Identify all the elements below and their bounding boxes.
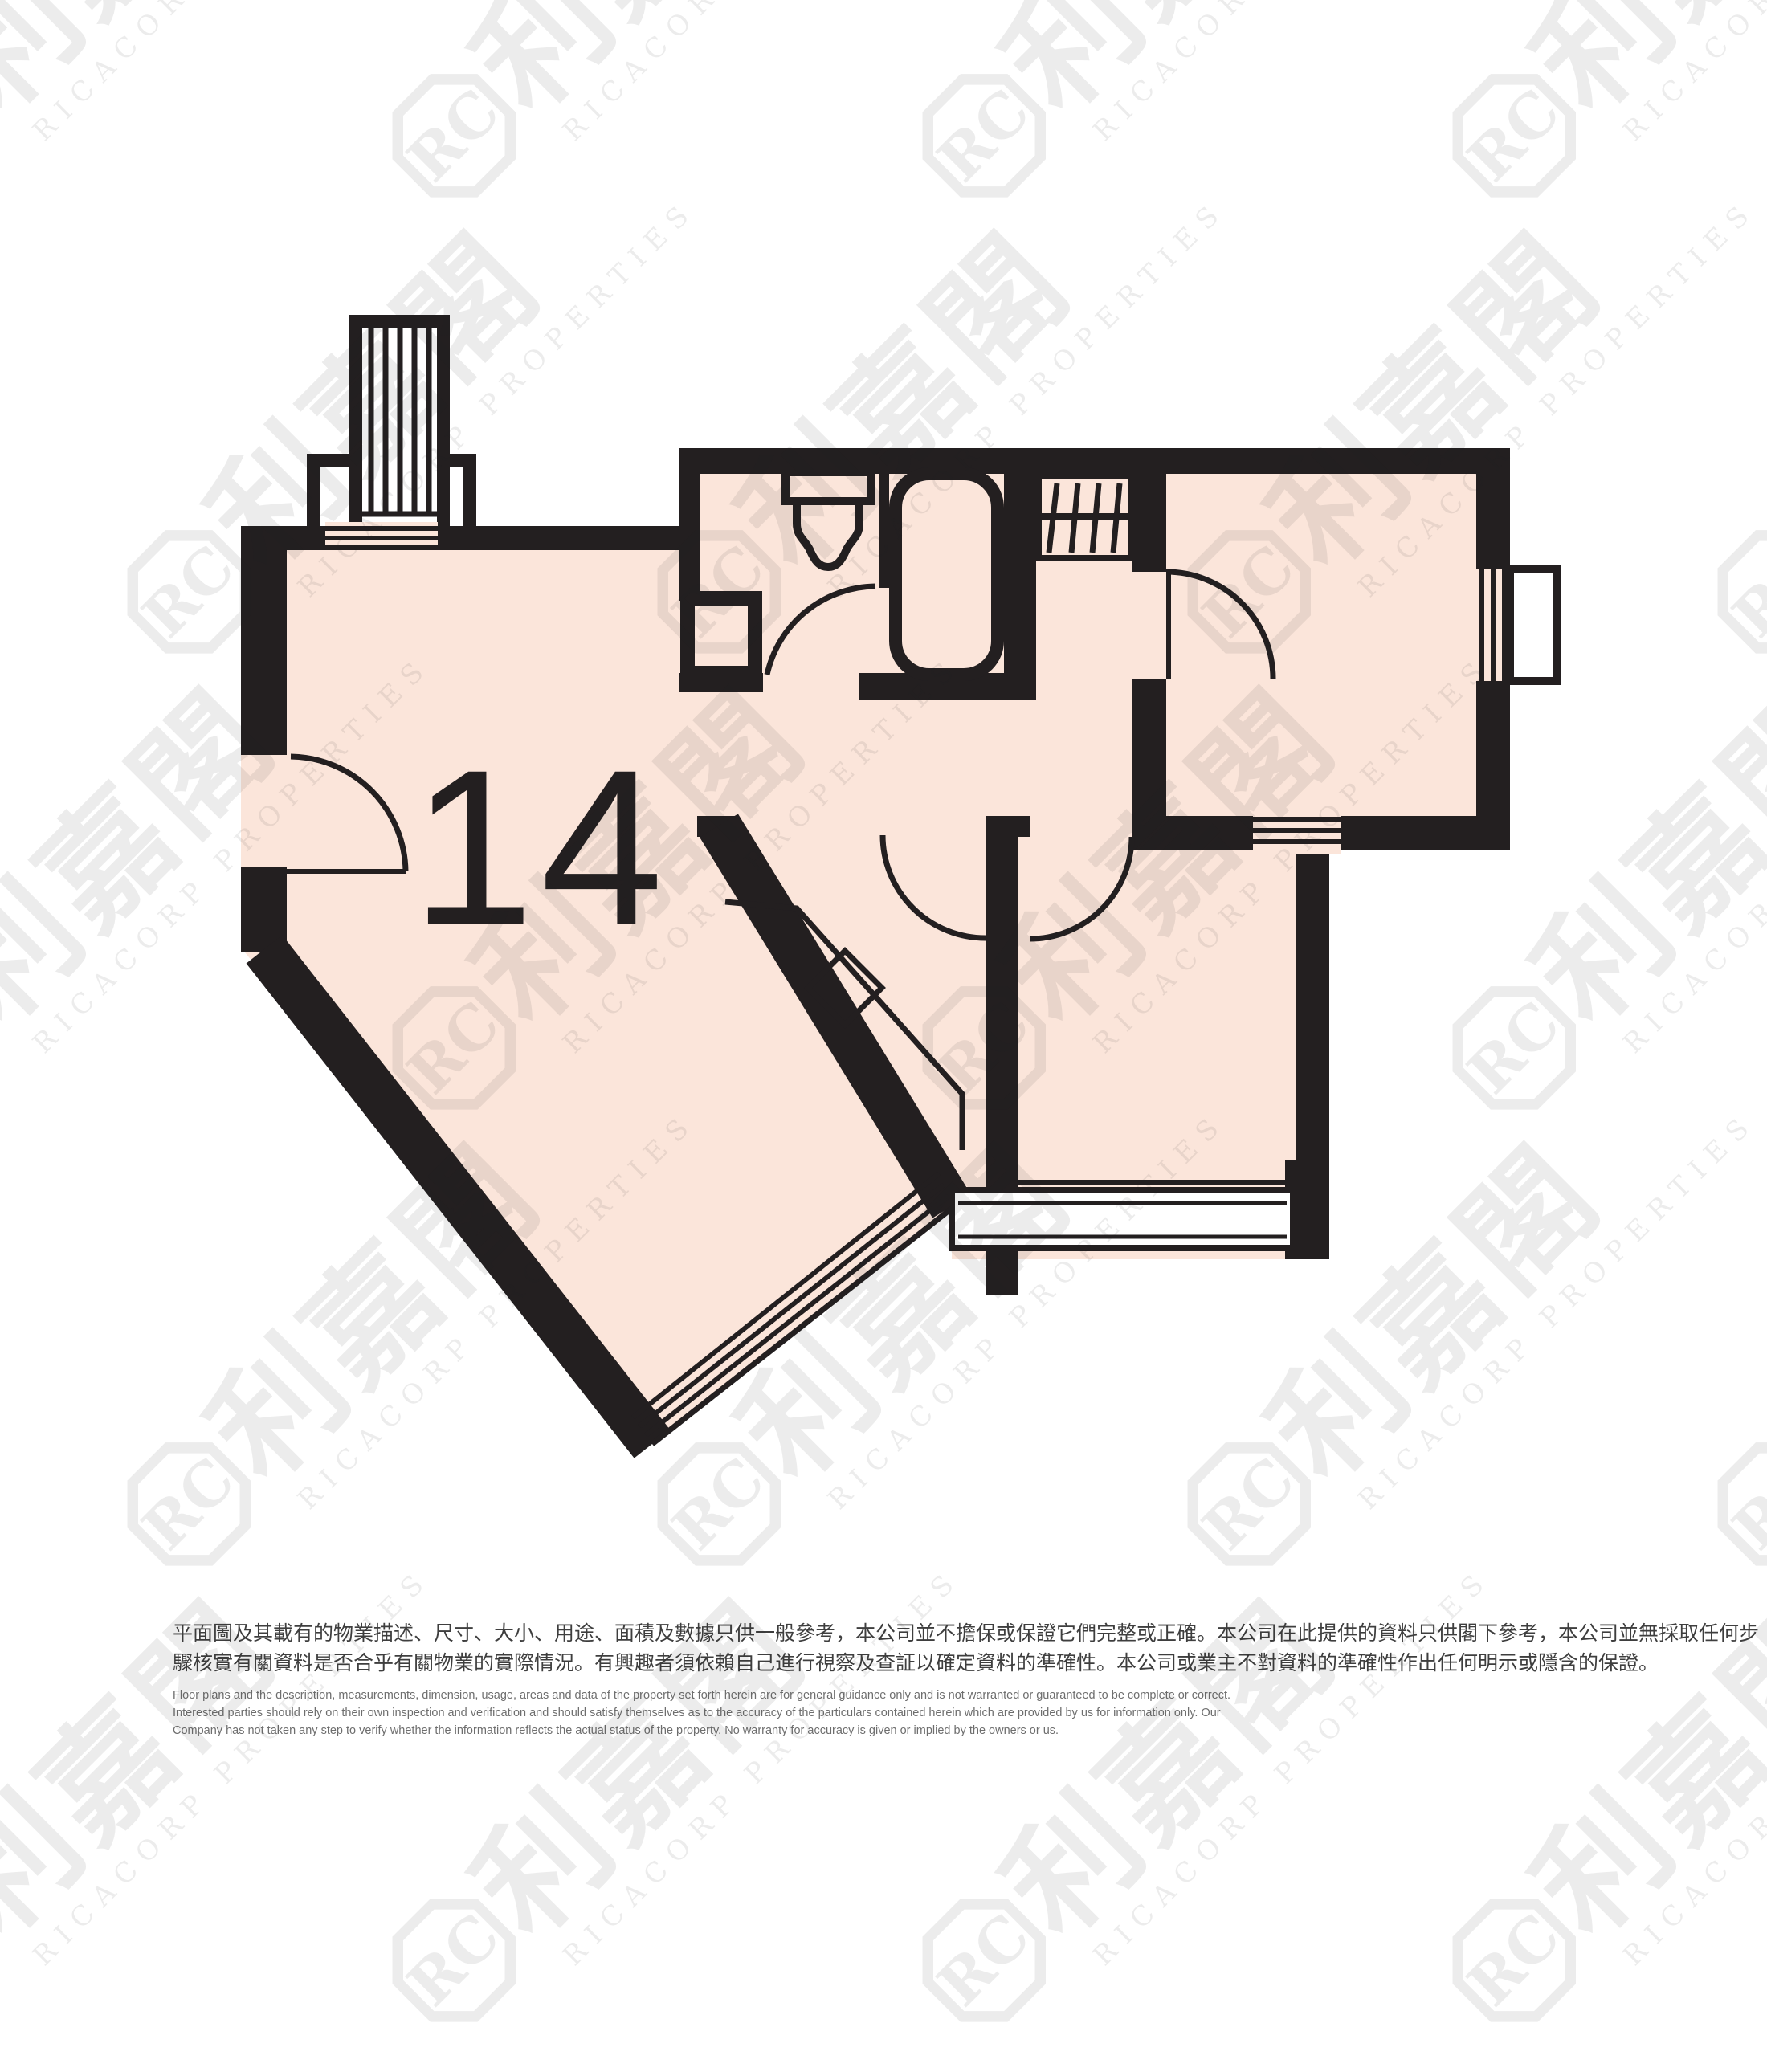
stair-grille	[313, 321, 470, 536]
disclaimer-en-line-2: Interested parties should rely on their …	[173, 1704, 1759, 1722]
disclaimer-en-line-3: Company has not taken any step to verify…	[173, 1722, 1759, 1740]
rc-logo-icon: RC	[0, 1875, 9, 2045]
svg-text:RC: RC	[924, 1900, 1044, 2020]
watermark-char: 利	[0, 1776, 104, 1956]
svg-text:RC: RC	[394, 1900, 514, 2020]
wc-cabinet	[688, 598, 755, 673]
bay-window-bottom	[952, 1182, 1296, 1248]
watermark-char: 利	[1514, 1776, 1693, 1956]
svg-text:RC: RC	[1455, 1900, 1574, 2020]
bay-window-right	[1482, 569, 1557, 681]
disclaimer-en-line-1: Floor plans and the description, measure…	[173, 1687, 1759, 1704]
watermark-char: 利	[454, 1776, 633, 1956]
watermark-char: 利	[984, 1776, 1163, 1956]
rc-logo-icon: RC	[369, 1875, 539, 2045]
rc-logo-icon: RC	[899, 1875, 1069, 2045]
unit-number-label: 14	[411, 724, 670, 971]
rc-logo-icon: RC	[1429, 1875, 1599, 2045]
disclaimer: 平面圖及其載有的物業描述、尺寸、大小、用途、面積及數據只供一般參考，本公司並不擔…	[173, 1619, 1759, 1740]
window-bedroom-bottom	[1253, 811, 1341, 854]
disclaimer-zh-line-1: 平面圖及其載有的物業描述、尺寸、大小、用途、面積及數據只供一般參考，本公司並不擔…	[173, 1619, 1759, 1649]
floor-plan: 14	[0, 0, 1767, 1767]
disclaimer-zh-line-2: 驟核實有關資料是否合乎有關物業的實際情況。有興趣者須依賴自己進行視察及查証以確定…	[173, 1649, 1759, 1678]
